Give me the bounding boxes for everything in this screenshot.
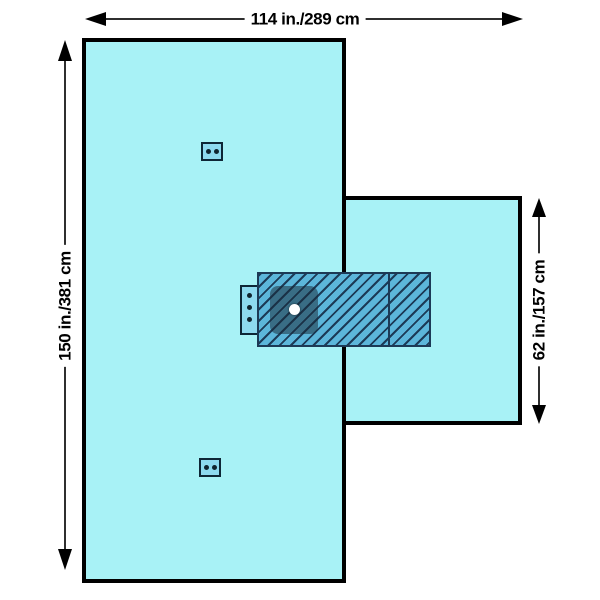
eyelet-dot-icon [204, 465, 209, 470]
eyelet-dot-icon [212, 465, 217, 470]
arrowhead-down-icon [532, 405, 546, 424]
width-dimension-label: 114 in./289 cm [245, 9, 366, 30]
extension-dimension-label: 62 in./157 cm [529, 254, 550, 367]
securement-tab-bottom [199, 458, 221, 477]
reinforcement-divider [388, 274, 390, 345]
fenestration-dot-icon [289, 304, 300, 315]
eyelet-dot-icon [214, 149, 219, 154]
eyelet-dot-icon [247, 317, 252, 322]
arrowhead-right-icon [502, 12, 523, 26]
securement-tab-top [201, 142, 223, 161]
arrowhead-left-icon [85, 12, 106, 26]
eyelet-dot-icon [247, 305, 252, 310]
eyelet-dot-icon [206, 149, 211, 154]
arrowhead-down-icon [58, 549, 72, 570]
eyelet-dot-icon [247, 293, 252, 298]
height-dimension-label: 150 in./381 cm [55, 245, 76, 367]
arrowhead-up-icon [58, 40, 72, 61]
arrowhead-up-icon [532, 198, 546, 217]
diagram-canvas: 114 in./289 cm 150 in./381 cm 62 in./157… [0, 0, 600, 600]
